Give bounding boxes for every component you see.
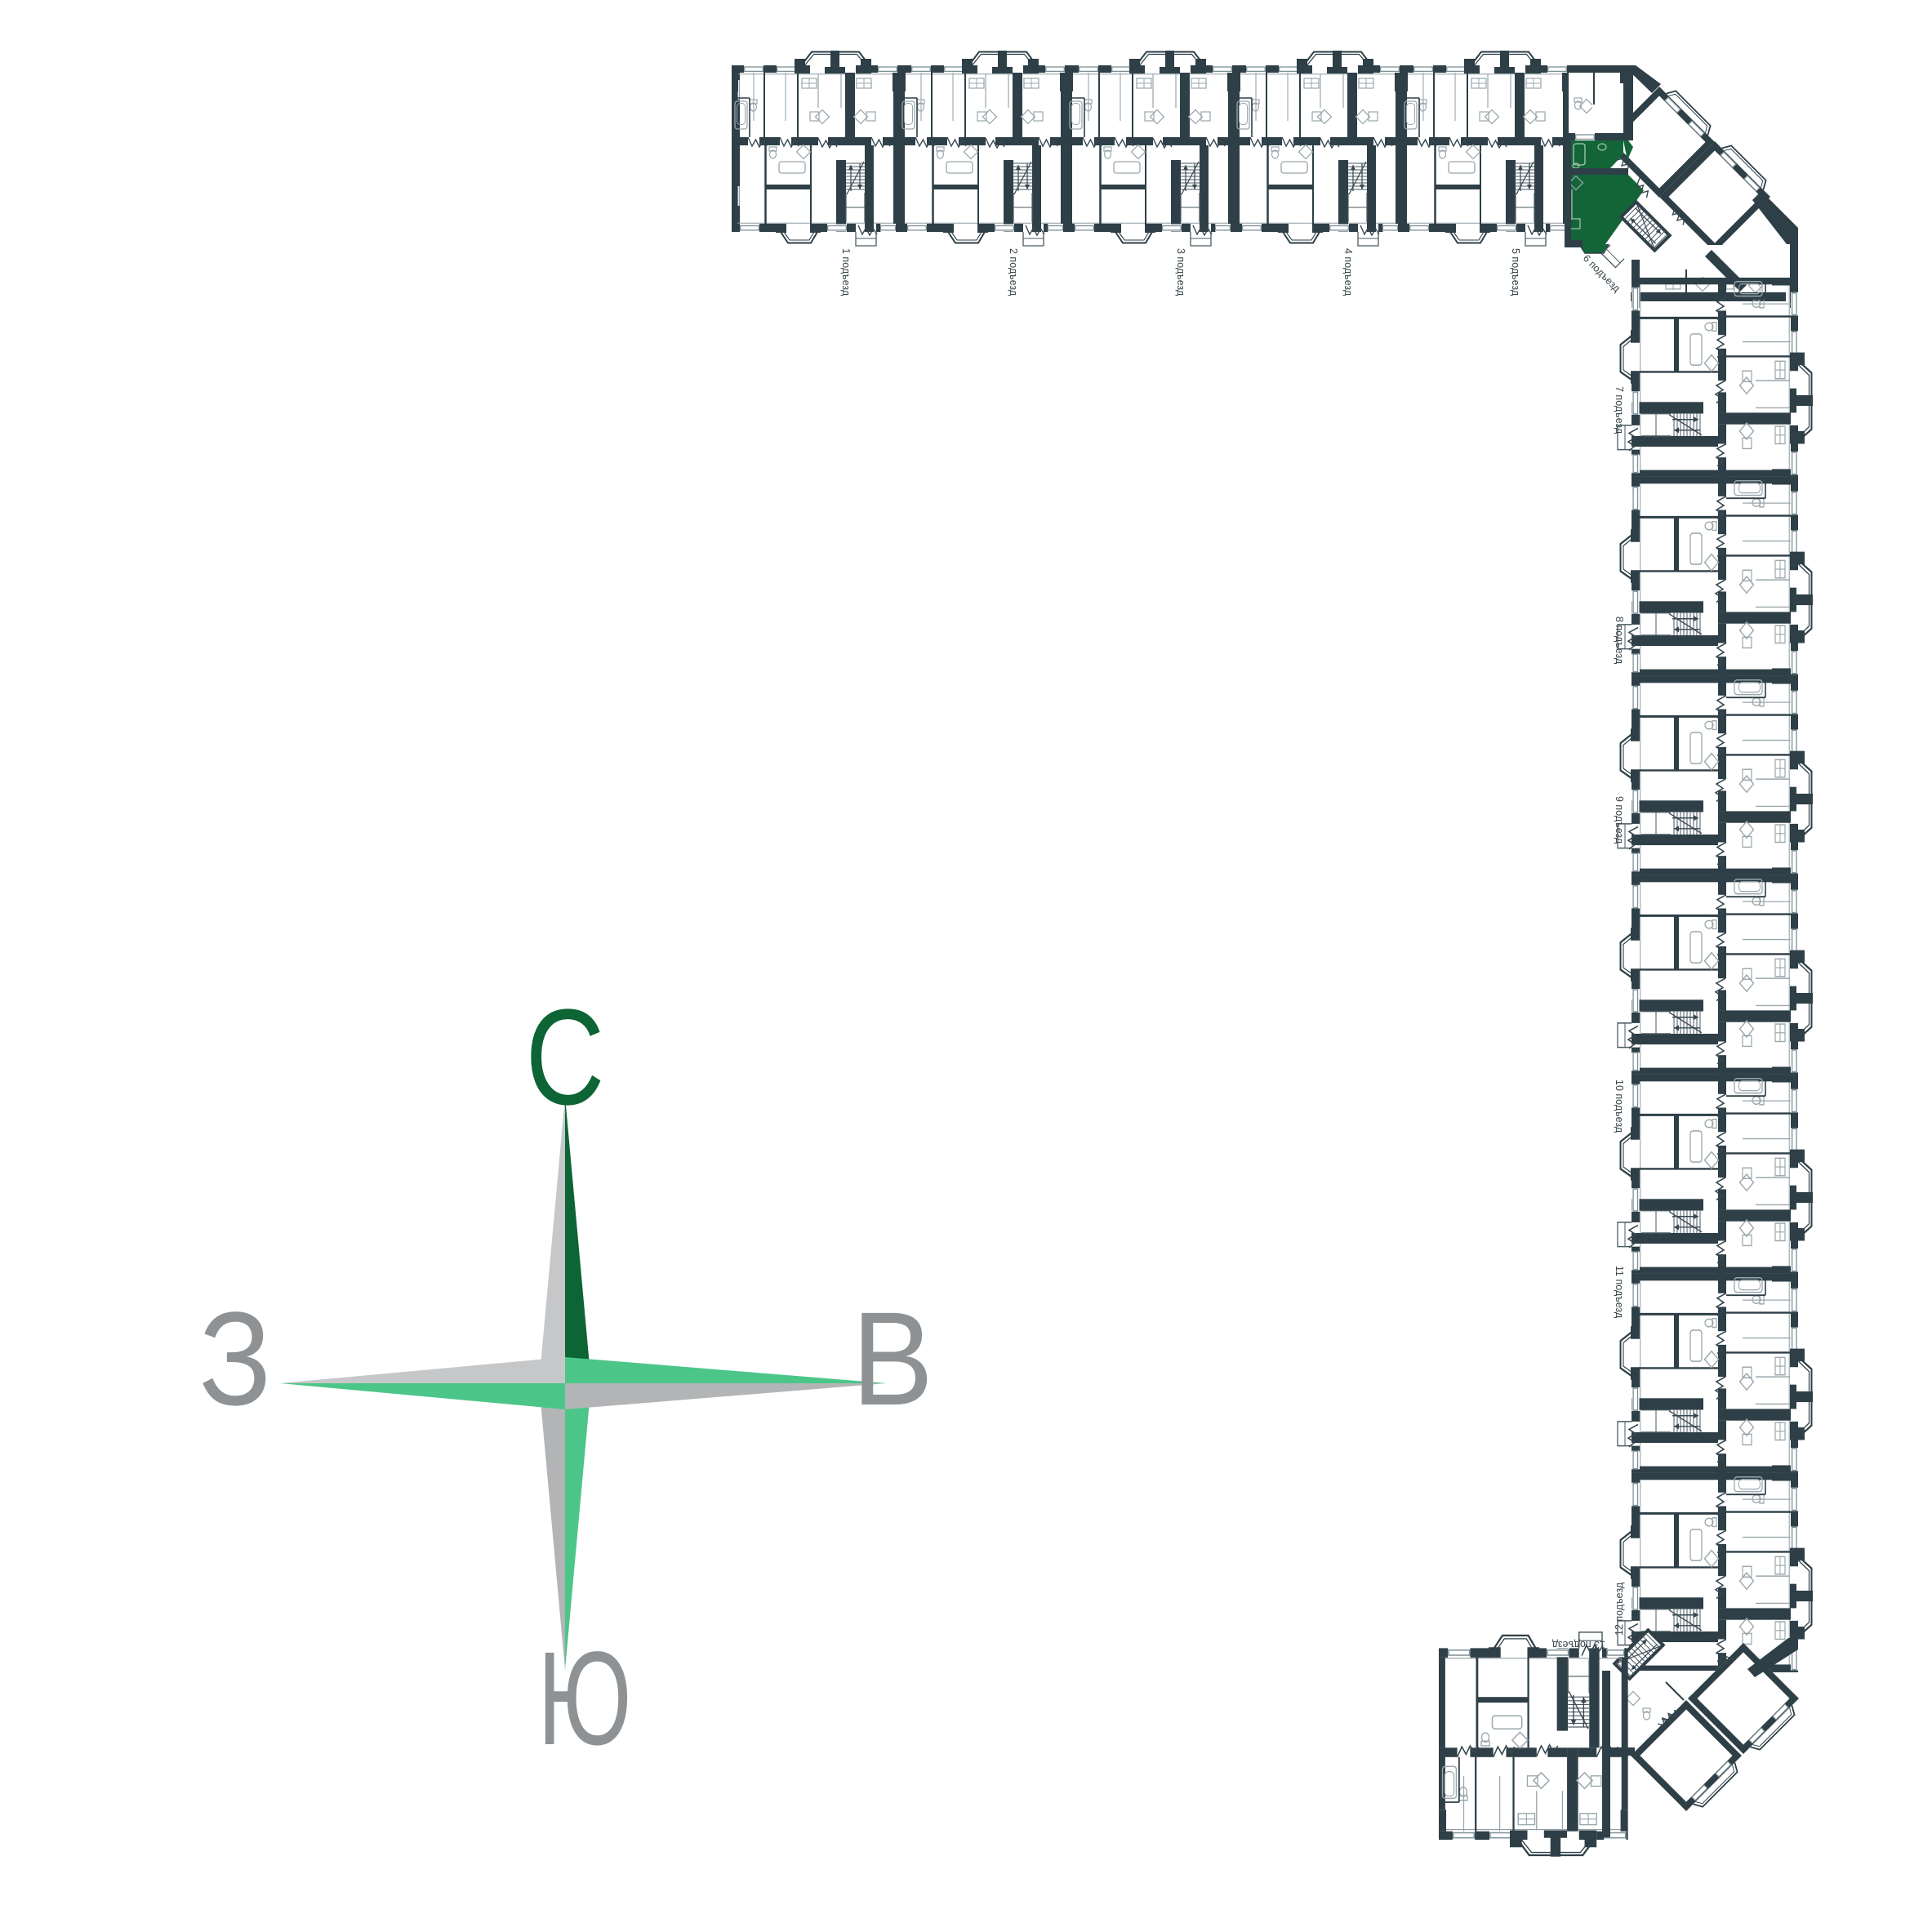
svg-text:4 подъезд: 4 подъезд [1342, 248, 1354, 296]
svg-text:10 подъезд: 10 подъезд [1614, 1080, 1625, 1133]
svg-text:5 подъезд: 5 подъезд [1510, 248, 1521, 296]
svg-text:С: С [526, 982, 605, 1133]
svg-text:1 подъезд: 1 подъезд [840, 248, 852, 296]
svg-text:7 подъезд: 7 подъезд [1614, 386, 1625, 434]
svg-text:Ю: Ю [538, 1623, 632, 1773]
svg-text:11 подъезд: 11 подъезд [1614, 1266, 1625, 1319]
svg-text:12 подъезд: 12 подъезд [1614, 1582, 1625, 1636]
svg-text:2 подъезд: 2 подъезд [1008, 248, 1019, 296]
svg-text:8 подъезд: 8 подъезд [1614, 617, 1625, 665]
svg-text:9 подъезд: 9 подъезд [1614, 796, 1625, 844]
svg-text:3 подъезд: 3 подъезд [1175, 248, 1186, 296]
svg-text:В: В [852, 1284, 933, 1433]
svg-text:З: З [199, 1284, 272, 1433]
